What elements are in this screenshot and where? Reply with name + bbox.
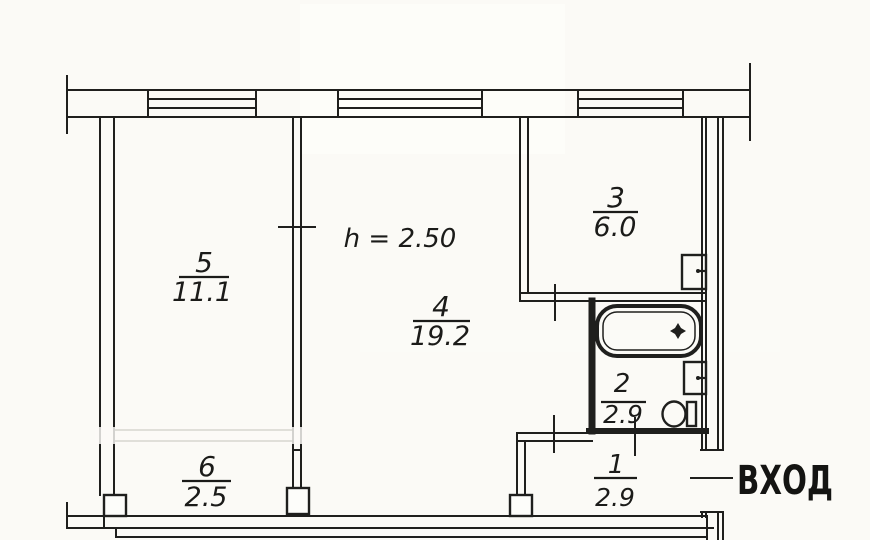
room-2-label: 2 2.9 (601, 369, 646, 429)
footing-left (104, 495, 126, 516)
floor-plan-page: 5 11.1 4 19.2 3 6.0 2 2.9 1 2.9 6 2.5 h … (0, 0, 870, 540)
room-4-area: 19.2 (410, 321, 470, 352)
room-6-area: 2.5 (185, 482, 228, 513)
right-inner-wall (702, 117, 706, 517)
room-3-label: 3 6.0 (593, 181, 638, 243)
footing-hallway (510, 495, 532, 516)
window-room-3-icon (578, 90, 683, 117)
right-exterior-wall (718, 117, 723, 540)
hallway-walls (517, 415, 592, 495)
kitchen-bottom-wall (520, 284, 706, 321)
room-5-area: 11.1 (172, 277, 232, 308)
scan-artifacts (300, 4, 780, 352)
faint-divider-room5-room6 (95, 427, 307, 444)
room-1-label: 1 2.9 (594, 450, 637, 512)
room-3-number: 3 (607, 181, 625, 214)
room-2-area: 2.9 (603, 400, 643, 429)
room-3-area: 6.0 (594, 212, 637, 243)
entrance-label: ВХОД (737, 458, 833, 504)
room-1-area: 2.9 (595, 483, 635, 512)
entrance-door-opening (690, 450, 733, 512)
window-room-5-icon (148, 90, 256, 117)
ceiling-height-label: h = 2.50 (344, 224, 457, 254)
room-5-label: 5 11.1 (172, 246, 232, 308)
room-4-number: 4 (432, 290, 450, 323)
room-6-label: 6 2.5 (182, 450, 231, 513)
toilet-icon (663, 402, 697, 427)
bathroom-walls (589, 301, 706, 456)
room-4-label: 4 19.2 (410, 290, 470, 352)
room-2-number: 2 (614, 369, 631, 399)
room-5-number: 5 (195, 246, 213, 279)
room-6-number: 6 (198, 450, 216, 483)
floor-plan-drawing: 5 11.1 4 19.2 3 6.0 2 2.9 1 2.9 6 2.5 h … (0, 0, 870, 540)
room-1-number: 1 (608, 450, 625, 480)
footing-middle (287, 488, 309, 514)
